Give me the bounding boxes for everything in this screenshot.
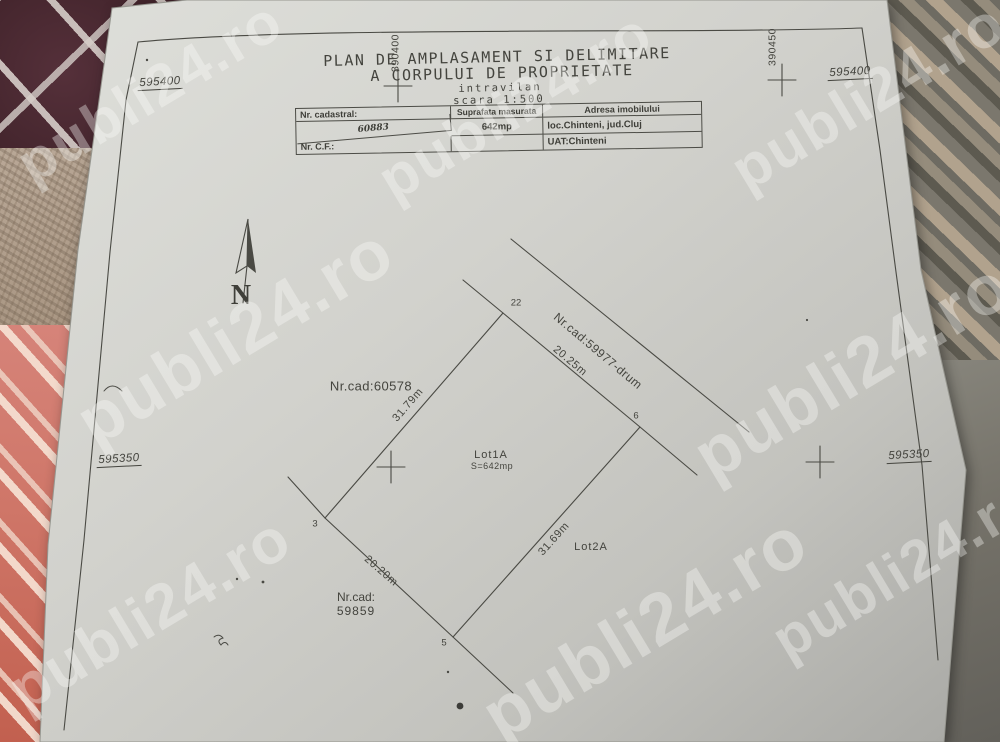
neighbor-parcel-bottom-label-line2: 59859 — [337, 604, 375, 618]
cadastral-plan-photo: PLAN DE AMPLASAMENT SI DELIMITARE A CORP… — [0, 0, 1000, 742]
lot1-area-label: S=642mp — [471, 461, 513, 471]
lot1-label: Lot1A — [474, 449, 508, 461]
easting-label-mid-right: 595350 — [886, 448, 932, 464]
neighbor-parcel-left-label: Nr.cad:60578 — [330, 379, 412, 394]
vertex-label-3: 3 — [312, 519, 317, 530]
neighbor-parcel-bottom-label-line1: Nr.cad: — [337, 590, 375, 604]
vertex-label-5: 5 — [441, 638, 446, 649]
uat-value: UAT:Chinteni — [544, 132, 702, 150]
lot2-label: Lot2A — [574, 541, 608, 553]
stray-dot — [447, 671, 449, 673]
vertex-label-6: 6 — [633, 411, 638, 422]
vertex-label-22: 22 — [511, 298, 522, 309]
northing-label-390400: 390400 — [390, 32, 403, 74]
stray-dot — [806, 319, 808, 321]
stray-blob — [457, 703, 464, 710]
northing-label-390450: 390450 — [767, 26, 780, 68]
